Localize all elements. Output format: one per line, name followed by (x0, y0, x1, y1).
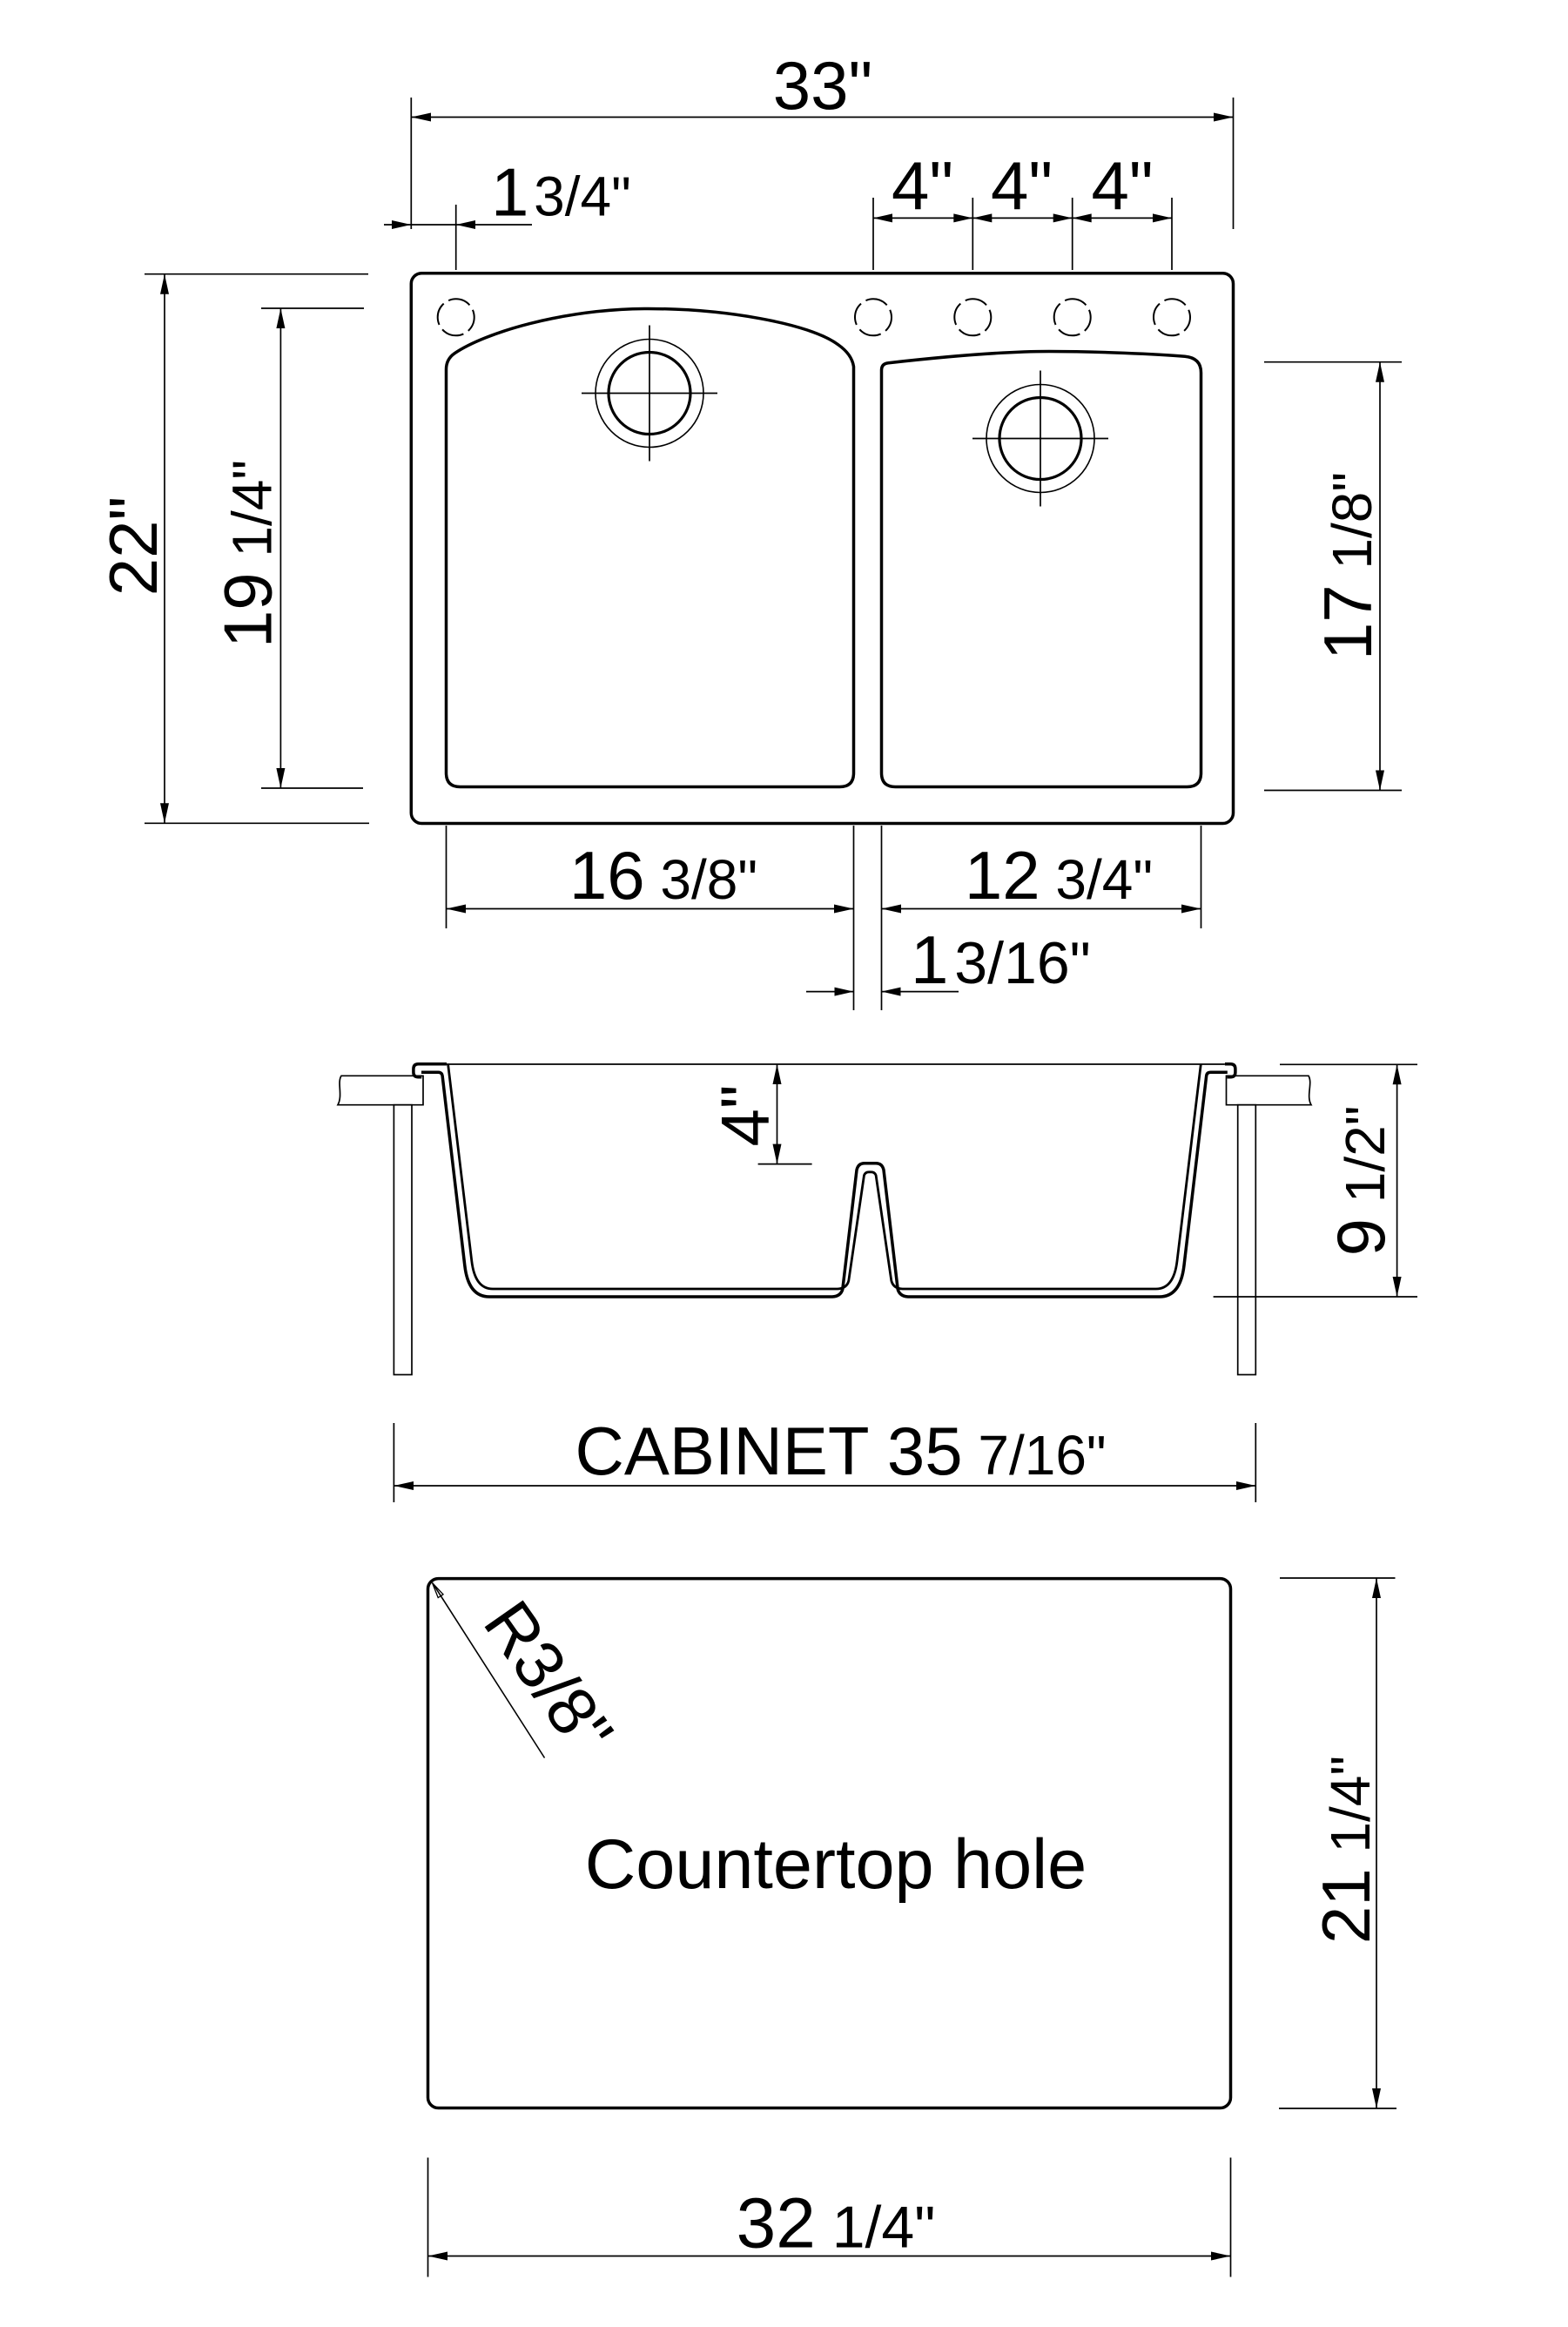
svg-text:16 3/8": 16 3/8" (569, 837, 757, 914)
svg-text:9 1/2": 9 1/2" (1322, 1106, 1399, 1257)
svg-text:4": 4" (707, 1084, 784, 1146)
svg-text:12 3/4": 12 3/4" (965, 837, 1153, 914)
svg-text:1 3/16": 1 3/16" (911, 921, 1091, 998)
svg-text:4": 4" (991, 147, 1053, 224)
svg-text:22": 22" (95, 496, 172, 596)
svg-text:21 1/4": 21 1/4" (1308, 1756, 1384, 1944)
svg-text:32 1/4": 32 1/4" (737, 2184, 936, 2263)
svg-text:1 3/4": 1 3/4" (491, 154, 631, 231)
svg-text:33": 33" (773, 47, 872, 124)
svg-text:CABINET 35 7/16": CABINET 35 7/16" (575, 1413, 1107, 1489)
svg-text:17 1/8": 17 1/8" (1309, 472, 1386, 660)
svg-text:Countertop hole: Countertop hole (585, 1825, 1087, 1904)
svg-text:4": 4" (892, 147, 953, 224)
svg-text:19 1/4": 19 1/4" (210, 460, 286, 648)
svg-text:4": 4" (1091, 147, 1153, 224)
